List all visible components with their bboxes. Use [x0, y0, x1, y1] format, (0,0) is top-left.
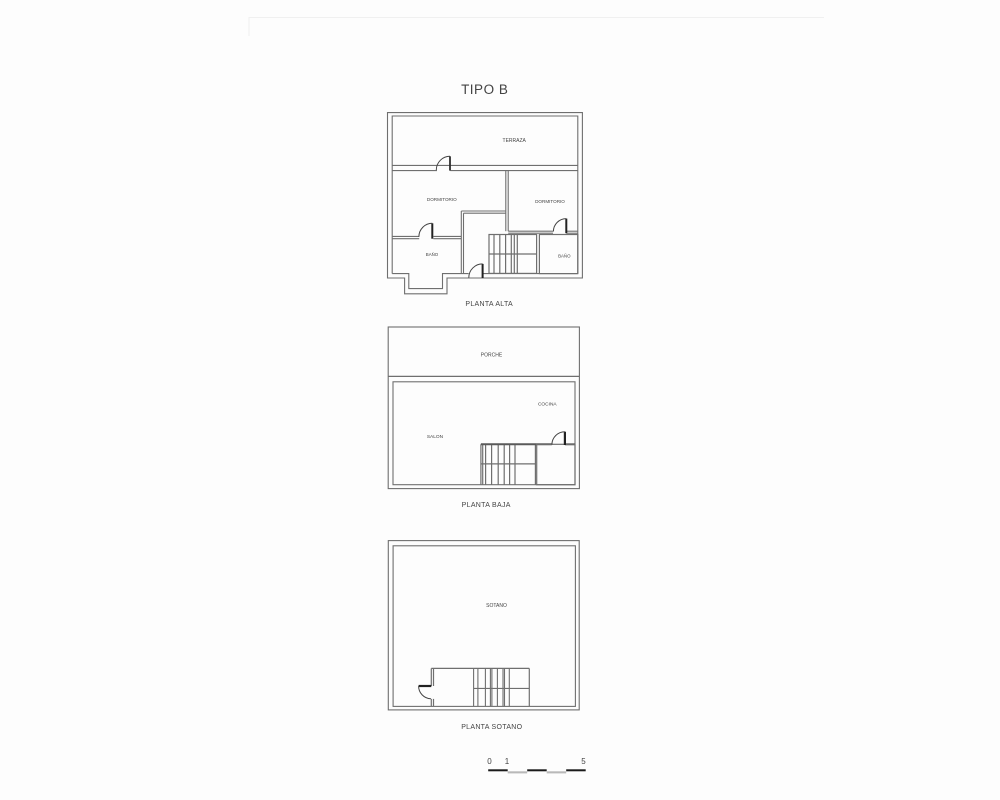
svg-text:PLANTA SOTANO: PLANTA SOTANO — [461, 724, 522, 731]
svg-text:SOTANO: SOTANO — [486, 603, 507, 609]
svg-text:5: 5 — [581, 757, 586, 766]
svg-text:PLANTA ALTA: PLANTA ALTA — [465, 301, 513, 308]
svg-text:DORMITORIO: DORMITORIO — [535, 199, 565, 204]
svg-text:DORMITORIO: DORMITORIO — [427, 197, 457, 202]
svg-text:COCINA: COCINA — [538, 402, 557, 408]
svg-text:BAÑO: BAÑO — [426, 252, 439, 257]
svg-text:PLANTA BAJA: PLANTA BAJA — [462, 502, 511, 509]
svg-text:TIPO B: TIPO B — [461, 82, 508, 97]
svg-text:SALON: SALON — [427, 434, 444, 440]
svg-text:BAÑO: BAÑO — [558, 254, 571, 259]
svg-text:0: 0 — [487, 757, 492, 766]
svg-text:1: 1 — [505, 757, 510, 766]
svg-text:PORCHE: PORCHE — [481, 353, 503, 359]
svg-text:TERRAZA: TERRAZA — [503, 138, 527, 144]
